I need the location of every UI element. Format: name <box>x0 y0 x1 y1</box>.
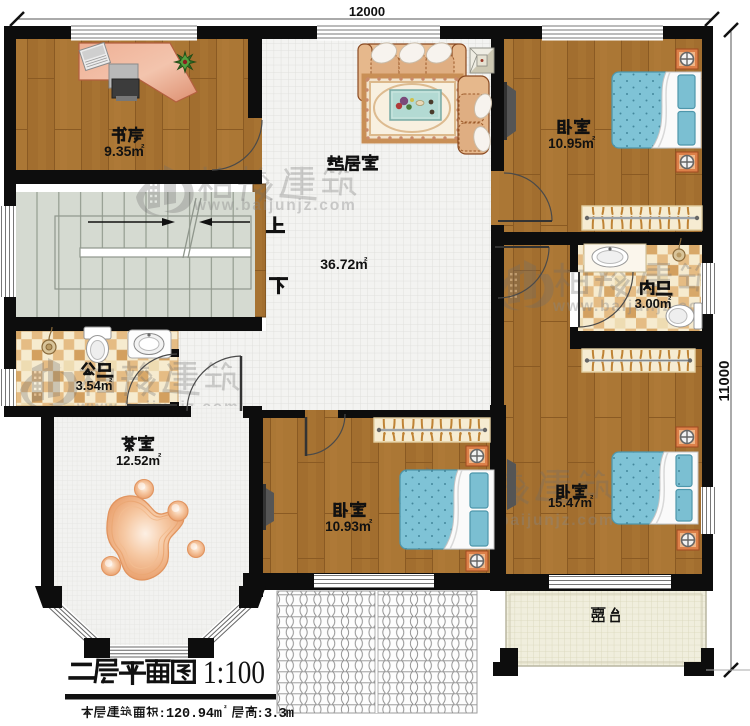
svg-text:1:100: 1:100 <box>203 655 265 691</box>
svg-text:12000: 12000 <box>349 4 385 19</box>
svg-text:²: ² <box>364 255 368 267</box>
svg-text:10.95m: 10.95m <box>548 136 594 151</box>
svg-text:10.93m: 10.93m <box>325 519 371 534</box>
svg-text:120.94m: 120.94m <box>166 707 222 722</box>
svg-text::: : <box>160 705 164 720</box>
svg-text:3.00m: 3.00m <box>635 296 672 311</box>
svg-text:3.54m: 3.54m <box>76 378 113 393</box>
svg-text:36.72m: 36.72m <box>320 256 367 272</box>
svg-text::: : <box>258 705 262 720</box>
svg-text:11000: 11000 <box>716 361 733 402</box>
svg-text:www.baijunjz.com: www.baijunjz.com <box>193 197 357 214</box>
svg-text:²: ² <box>224 704 227 713</box>
svg-text:15.47m: 15.47m <box>548 495 592 510</box>
svg-text:3.3m: 3.3m <box>264 707 294 722</box>
svg-text:²: ² <box>141 142 145 154</box>
svg-text:12.52m: 12.52m <box>116 453 160 468</box>
svg-text:9.35m: 9.35m <box>104 143 144 159</box>
